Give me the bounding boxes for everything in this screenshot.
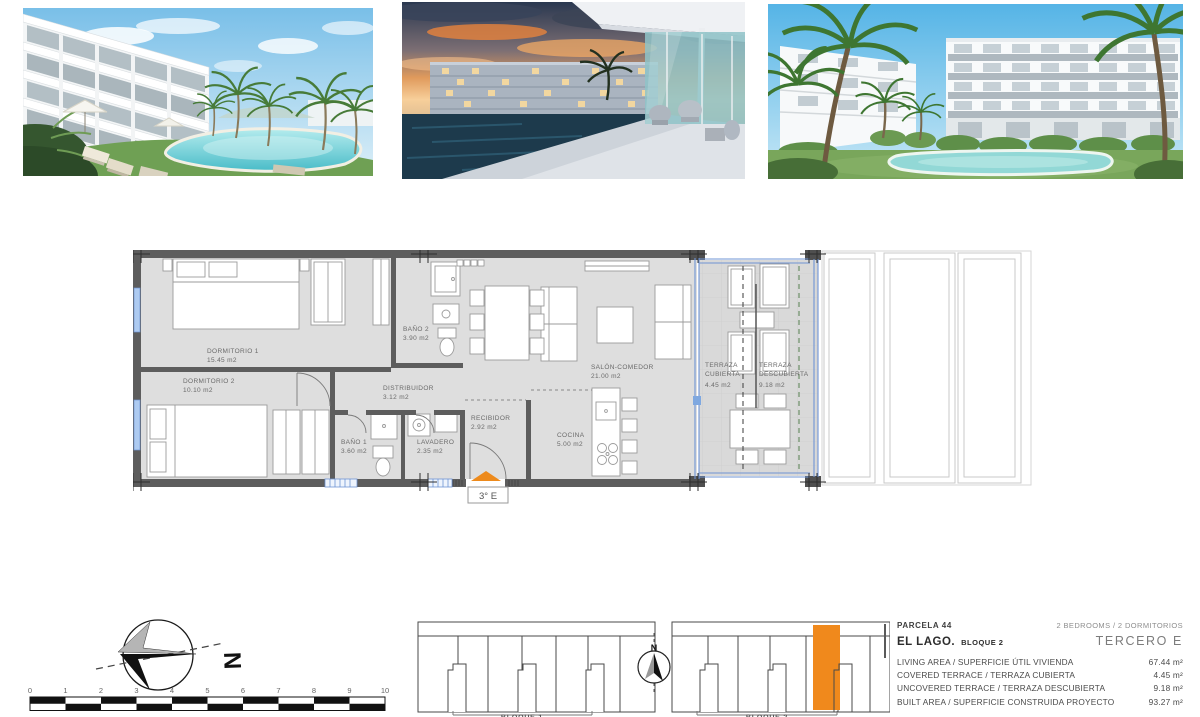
compass-and-scalebar: N 0 1 2 3 4 5 6 7 8 9 10	[10, 608, 410, 717]
room-label: SALÓN-COMEDOR	[591, 362, 654, 371]
terrace-uncovered-area: 9.18 m2	[759, 382, 785, 389]
project-title: EL LAGO.BLOQUE 2	[897, 632, 1003, 650]
room-label: DORMITORIO 1	[207, 348, 259, 355]
unit-details-panel: PARCELA 44 2 BEDROOMS / 2 DORMITORIOS EL…	[897, 621, 1183, 709]
room-label: LAVADERO	[417, 439, 454, 446]
room-label: DORMITORIO 2	[183, 378, 235, 385]
details-header-row: PARCELA 44 2 BEDROOMS / 2 DORMITORIOS	[897, 621, 1183, 630]
photo-pool-garden-day	[23, 8, 373, 176]
pool-highlight	[918, 156, 1088, 168]
unit-entrance-text: 3° E	[479, 491, 497, 502]
room-area: 5.00 m2	[557, 441, 583, 448]
room-label: BAÑO 2	[403, 324, 429, 333]
room-label: COCINA	[557, 432, 585, 439]
scale-tick: 0	[28, 686, 32, 695]
scale-bar: 0 1 2 3 4 5 6 7 8 9 10	[28, 686, 389, 711]
block-1-outline	[418, 622, 655, 712]
scale-tick: 10	[381, 686, 389, 695]
north-label: N	[218, 652, 246, 670]
highlighted-unit	[813, 625, 840, 710]
adjacent-units-outline	[822, 251, 1031, 485]
room-label: BAÑO 1	[341, 437, 367, 446]
area-label: COVERED TERRACE / TERRAZA CUBIERTA	[897, 669, 1075, 682]
room-area: 3.90 m2	[403, 335, 429, 342]
scale-tick: 2	[99, 686, 103, 695]
block-2-outline	[672, 622, 890, 712]
scale-tick: 9	[347, 686, 351, 695]
room-label: DISTRIBUIDOR	[383, 385, 434, 392]
area-value: 4.45 m²	[1153, 669, 1183, 682]
room-area: 21.00 m2	[591, 373, 621, 380]
details-divider	[884, 624, 886, 658]
site-block-diagrams: BLOQUE 1 N BLOQUE 2	[410, 615, 890, 717]
area-value: 93.27 m²	[1149, 696, 1183, 709]
room-area: 3.60 m2	[341, 448, 367, 455]
room-area: 2.35 m2	[417, 448, 443, 455]
background-building	[430, 62, 658, 117]
room-area: 15.45 m2	[207, 357, 237, 364]
parcela-label: PARCELA 44	[897, 621, 952, 630]
scale-tick: 5	[205, 686, 209, 695]
scale-tick: 7	[276, 686, 280, 695]
project-name: EL LAGO.	[897, 636, 955, 648]
block-label: BLOQUE 2	[961, 638, 1003, 647]
area-table: LIVING AREA / SUPERFICIE ÚTIL VIVIENDA 6…	[897, 656, 1183, 709]
area-value: 67.44 m²	[1149, 656, 1183, 669]
photo-terrace-dusk	[402, 2, 745, 179]
terrace-covered-label: TERRAZA	[705, 362, 738, 369]
scale-tick: 8	[312, 686, 316, 695]
room-area: 10.10 m2	[183, 387, 213, 394]
area-value: 9.18 m²	[1153, 682, 1183, 695]
floor-unit-label: TERCERO E	[1096, 634, 1183, 648]
right-building	[946, 38, 1180, 140]
area-label: UNCOVERED TERRACE / TERRAZA DESCUBIERTA	[897, 682, 1105, 695]
details-title-row: EL LAGO.BLOQUE 2 TERCERO E	[897, 632, 1183, 650]
scale-tick: 3	[134, 686, 138, 695]
north-compass-icon: N	[96, 620, 246, 690]
brochure-page: 3° E DORMITORIO 1 15.45 m2 DORMITORIO 2 …	[0, 0, 1200, 717]
terrace-uncovered-label: DESCUBIERTA	[759, 371, 809, 378]
bedrooms-label: 2 BEDROOMS / 2 DORMITORIOS	[1056, 621, 1183, 630]
photo-facade-day	[768, 4, 1183, 179]
terrace-uncovered-label: TERRAZA	[759, 362, 792, 369]
room-area: 3.12 m2	[383, 394, 409, 401]
area-label: LIVING AREA / SUPERFICIE ÚTIL VIVIENDA	[897, 656, 1074, 669]
area-label: BUILT AREA / SUPERFICIE CONSTRUIDA PROYE…	[897, 696, 1114, 709]
room-area: 2.92 m2	[471, 424, 497, 431]
slider-handle	[693, 396, 701, 405]
room-label: RECIBIDOR	[471, 415, 510, 422]
floorplan: 3° E DORMITORIO 1 15.45 m2 DORMITORIO 2 …	[133, 250, 1033, 506]
scale-tick: 1	[63, 686, 67, 695]
terrace-covered-area: 4.45 m2	[705, 382, 731, 389]
area-row: UNCOVERED TERRACE / TERRAZA DESCUBIERTA …	[897, 682, 1183, 695]
area-row: LIVING AREA / SUPERFICIE ÚTIL VIVIENDA 6…	[897, 656, 1183, 669]
area-row: BUILT AREA / SUPERFICIE CONSTRUIDA PROYE…	[897, 696, 1183, 709]
terrace-covered-label: CUBIERTA	[705, 371, 740, 378]
scale-tick: 6	[241, 686, 245, 695]
scale-tick: 4	[170, 686, 174, 695]
area-row: COVERED TERRACE / TERRAZA CUBIERTA 4.45 …	[897, 669, 1183, 682]
